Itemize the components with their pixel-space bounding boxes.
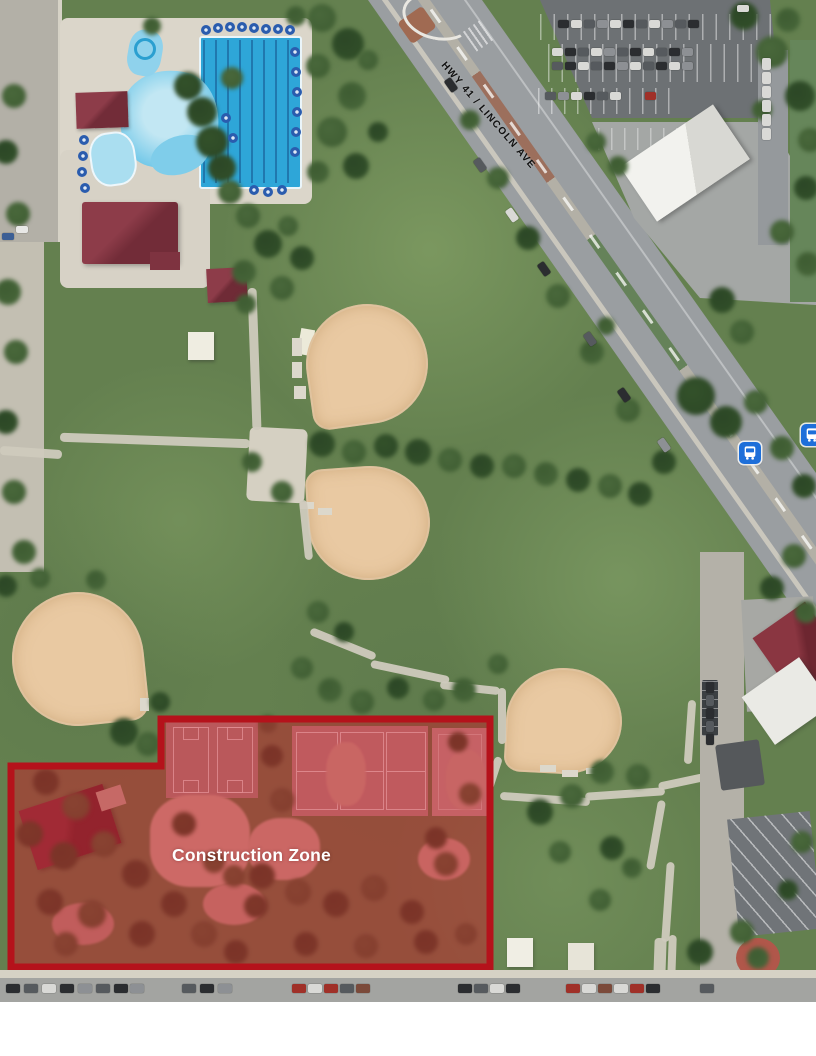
construction-zone-label: Construction Zone [172,845,331,866]
parked-car [458,984,472,993]
bus-stop-icon [739,442,761,464]
parked-car [340,984,354,993]
parked-car [96,984,110,993]
construction-zone-overlay [0,0,816,1002]
parked-car [218,984,232,993]
parked-car [356,984,370,993]
south-sidewalk [0,970,816,978]
parked-car [598,984,612,993]
parked-car [182,984,196,993]
parked-car [60,984,74,993]
parked-car [114,984,128,993]
parked-car [566,984,580,993]
parked-car [130,984,144,993]
bus-glyph [804,427,816,443]
parked-car [630,984,644,993]
bus-glyph [742,445,758,461]
aerial-photo: Construction Zone HWY 41 / LINCOLN AVE [0,0,816,1002]
parked-car [292,984,306,993]
parked-car [324,984,338,993]
parked-car [78,984,92,993]
parked-car [6,984,20,993]
document-page: Construction Zone HWY 41 / LINCOLN AVE [0,0,816,1056]
parked-car [582,984,596,993]
parked-car [474,984,488,993]
parked-car [614,984,628,993]
parked-car [646,984,660,993]
bus-stop-icon [801,424,816,446]
parked-car [308,984,322,993]
parked-car [506,984,520,993]
parked-car [700,984,714,993]
page-bottom-margin [0,1002,816,1056]
parked-car [24,984,38,993]
parked-car [42,984,56,993]
construction-zone-region [11,719,490,967]
parked-car [200,984,214,993]
parked-car [490,984,504,993]
